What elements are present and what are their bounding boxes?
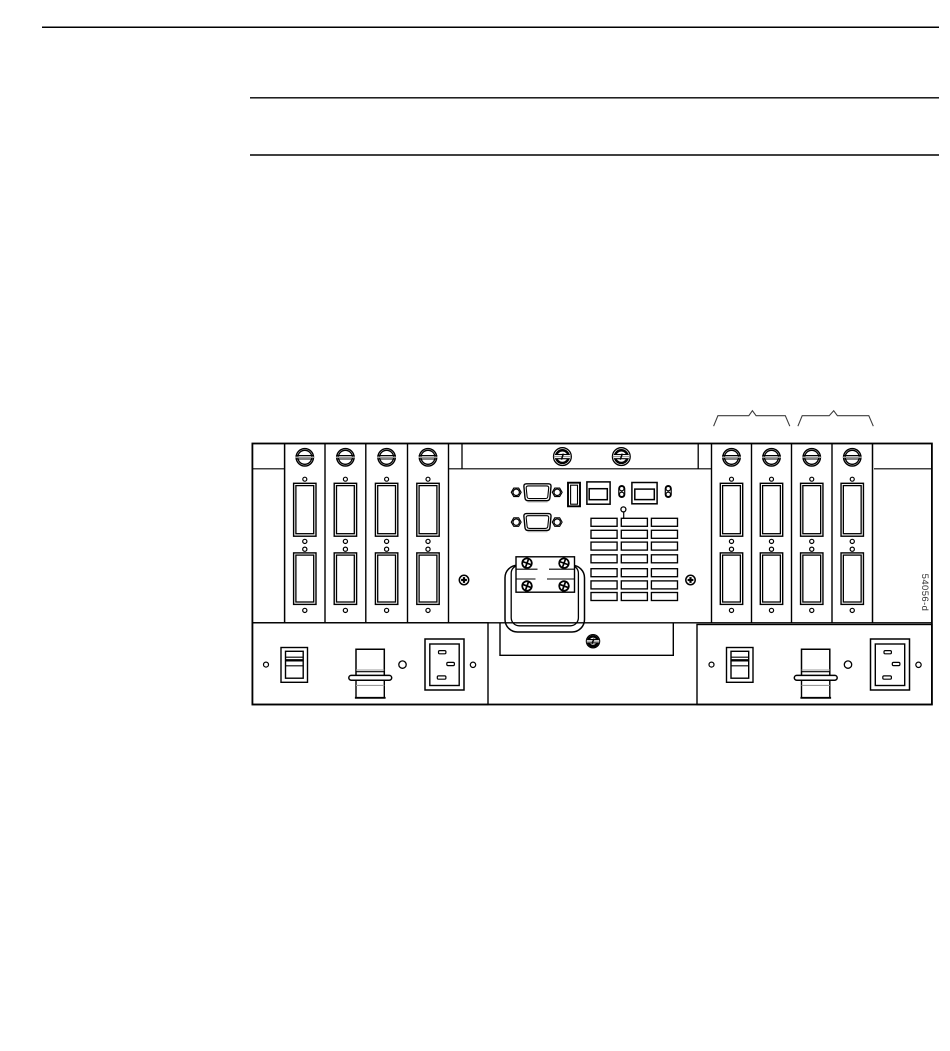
svg-text:54056-d: 54056-d (919, 574, 930, 612)
